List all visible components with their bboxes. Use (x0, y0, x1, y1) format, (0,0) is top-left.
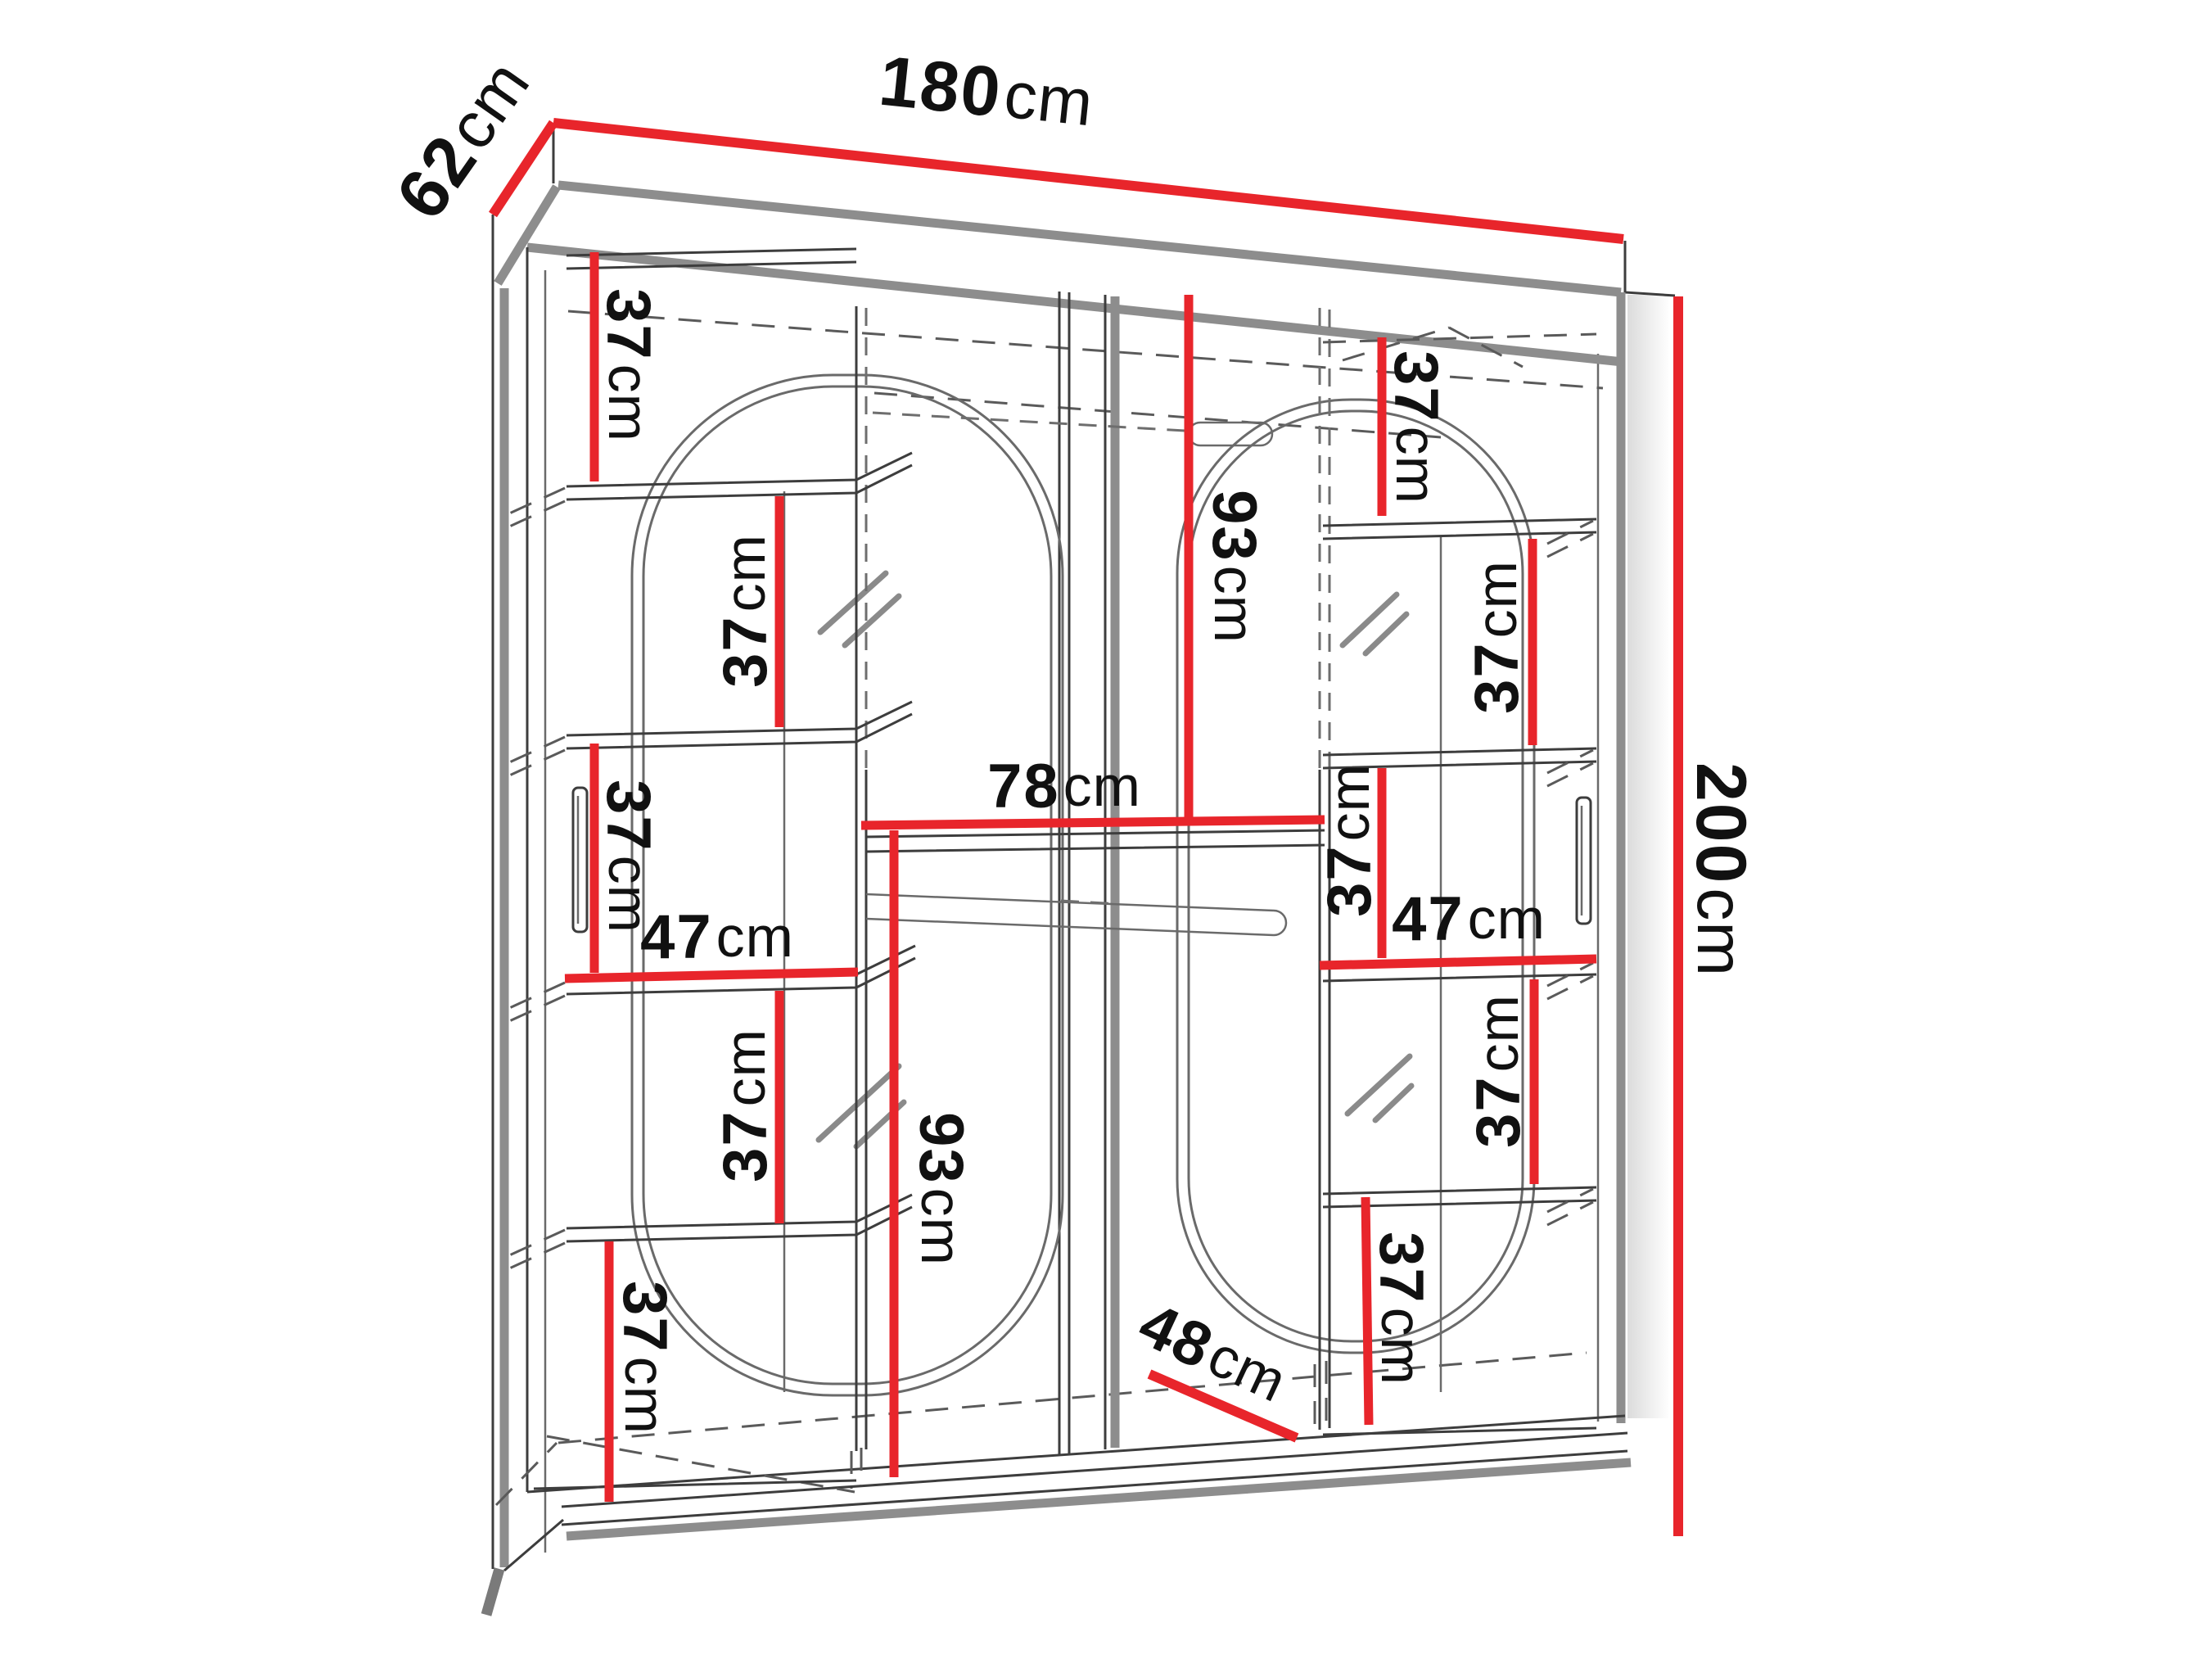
left-base-depth-edge (504, 1520, 563, 1571)
dim-label-right-gap-upper: 37cm (1462, 560, 1532, 714)
right-corner-step (1625, 241, 1675, 296)
dim-label-center-upper-height: 93cm (1200, 490, 1270, 644)
dim-label-left-gap-upper: 37cm (711, 534, 780, 688)
dim-label-right-gap-top: 37cm (1382, 350, 1451, 504)
dim-label-left-shelf-width: 47cm (640, 902, 794, 972)
center-shelf (866, 830, 1325, 852)
dim-label-right-gap-bottom: 37cm (1367, 1232, 1437, 1386)
left-door-mirror (632, 375, 1063, 1395)
dim-label-right-shelf-width: 47cm (1392, 884, 1546, 954)
dim-label-width-top: 180cm (876, 42, 1098, 142)
dim-line-width-top (553, 123, 1623, 239)
dim-label-height-right: 200cm (1682, 762, 1760, 977)
base-shadow (567, 1462, 1631, 1536)
left-door-handle (573, 788, 587, 932)
base-bottom-edge (562, 1451, 1627, 1525)
door-bottom-edge (527, 1416, 1625, 1492)
right-side-shading (1627, 295, 1670, 1418)
left-shelf-hidden-edges (508, 488, 565, 1269)
dim-label-left-gap-lower: 37cm (711, 1028, 780, 1182)
left-door-right-edge (1059, 292, 1069, 1454)
door-top-edge (527, 247, 1623, 362)
dim-label-left-gap-bottom: 37cm (611, 1281, 680, 1435)
left-corner-shadow (486, 1569, 499, 1615)
lower-hanging-rod (866, 894, 1286, 935)
dim-label-center-shelf-width: 78cm (987, 752, 1141, 821)
top-front-edge (558, 185, 1621, 292)
dim-line-right-shelf-width (1320, 959, 1596, 965)
dim-label-right-gap-middle: 37cm (1315, 763, 1384, 917)
diagram-canvas: 180cm 62cm 200cm 37cm 37cm 37cm 47cm 37c… (0, 0, 2212, 1659)
dim-label-depth-top-left: 62cm (381, 46, 545, 233)
wardrobe-dimension-diagram: 180cm 62cm 200cm 37cm 37cm 37cm 47cm 37c… (0, 0, 2212, 1659)
dim-line-left-shelf-width (565, 972, 858, 979)
dim-line-center-shelf-width (861, 820, 1325, 825)
dim-label-center-lower-height: 93cm (907, 1112, 977, 1266)
upper-rod-hidden (873, 413, 1185, 431)
right-door-handle (1577, 798, 1591, 924)
dim-label-left-gap-top: 37cm (594, 288, 664, 442)
dim-label-right-gap-lower: 37cm (1464, 994, 1533, 1148)
